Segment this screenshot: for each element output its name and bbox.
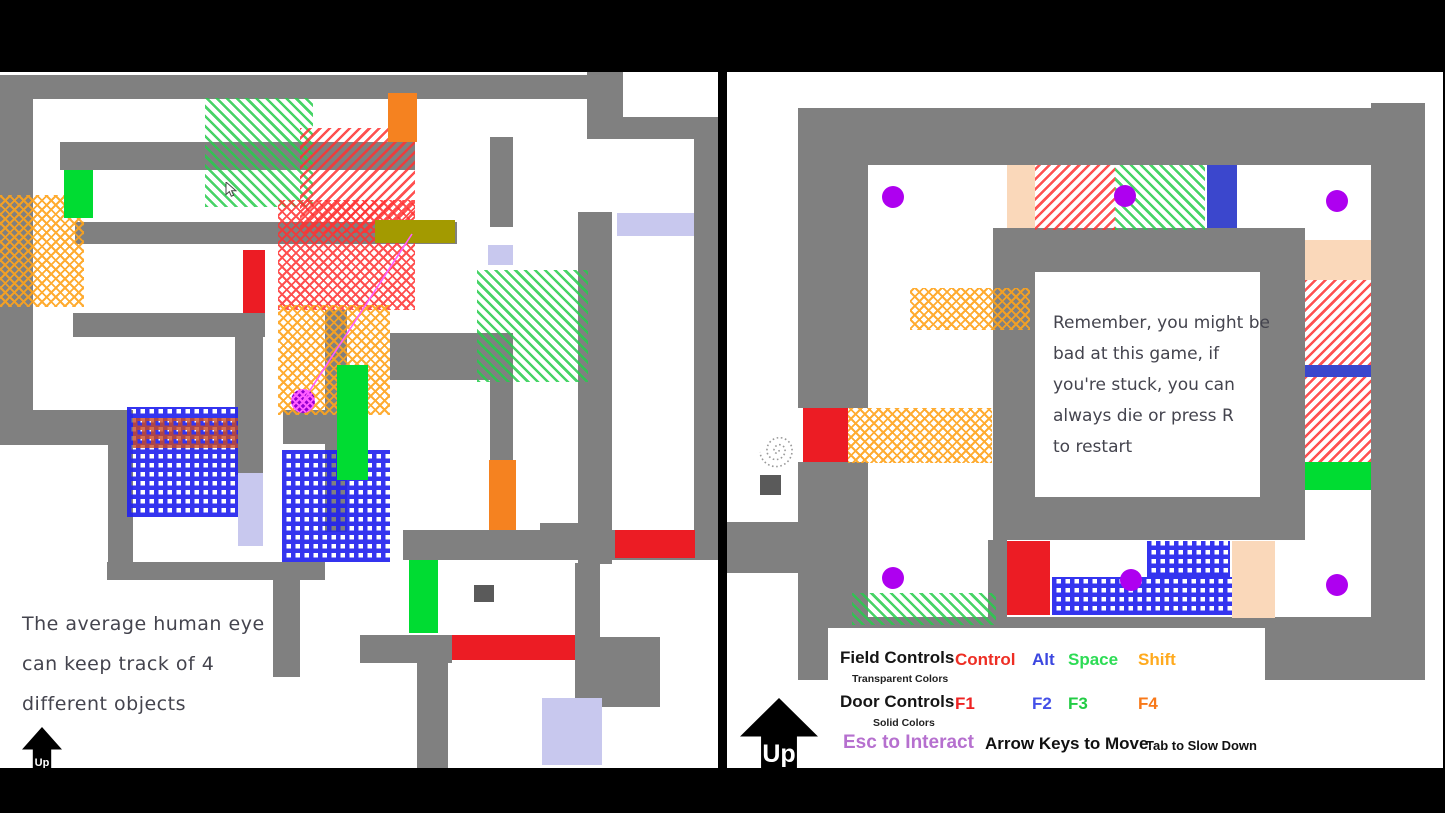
objective-dot <box>1326 574 1348 596</box>
key-f4: F4 <box>1138 694 1158 714</box>
note-line: to restart <box>1053 432 1260 463</box>
player-marker <box>291 389 315 413</box>
key-control: Control <box>955 650 1015 670</box>
maze-wall <box>540 523 590 547</box>
objective-dot <box>882 186 904 208</box>
maze-wall <box>1371 103 1425 680</box>
objective-dot <box>1326 190 1348 212</box>
field-orange-dots <box>910 288 1030 330</box>
field-red-hatch <box>1305 377 1371 462</box>
door-red <box>243 250 265 313</box>
field-controls-subtitle: Transparent Colors <box>852 673 948 685</box>
door-blue <box>1305 365 1371 377</box>
maze-wall <box>490 378 513 462</box>
key-f1: F1 <box>955 694 975 714</box>
block-lavender <box>617 213 694 236</box>
field-red-grid <box>133 418 238 448</box>
maze-wall <box>993 228 1035 540</box>
field-red-hatch <box>1035 165 1115 230</box>
key-f2: F2 <box>1032 694 1052 714</box>
right-maze-panel[interactable]: Remember, you might be bad at this game,… <box>727 72 1443 768</box>
note-line: you're stuck, you can <box>1053 370 1260 401</box>
field-blue-grid <box>1052 577 1232 615</box>
controls-legend: Field Controls Transparent Colors Contro… <box>828 628 1265 767</box>
maze-wall <box>235 313 263 475</box>
maze-wall <box>0 410 133 445</box>
maze-wall <box>694 117 718 557</box>
door-controls-label: Door Controls <box>840 692 954 712</box>
note-line: bad at this game, if <box>1053 339 1260 370</box>
field-red-hatch <box>1305 280 1371 365</box>
door-blue <box>1207 165 1237 228</box>
arrow-keys-hint: Arrow Keys to Move <box>985 734 1148 754</box>
tab-hint: Tab to Slow Down <box>1146 738 1257 753</box>
hint-line: The average human eye <box>22 604 265 644</box>
maze-wall <box>360 635 452 663</box>
door-green <box>1305 462 1371 490</box>
hint-line: different objects <box>22 684 265 724</box>
block-olive <box>375 220 455 243</box>
maze-wall <box>798 108 1425 165</box>
block-lavender <box>542 698 602 765</box>
block-lavender <box>488 245 513 265</box>
note-line: Remember, you might be <box>1053 308 1260 339</box>
key-shift: Shift <box>1138 650 1176 670</box>
maze-wall <box>575 637 660 707</box>
door-orange <box>388 93 417 142</box>
key-alt: Alt <box>1032 650 1055 670</box>
door-red <box>803 408 848 462</box>
maze-wall <box>273 562 300 677</box>
door-green <box>409 560 438 633</box>
field-controls-label: Field Controls <box>840 648 954 668</box>
field-red-dots <box>278 200 415 310</box>
spiral-icon <box>758 431 798 476</box>
field-blue-grid <box>1147 541 1230 577</box>
maze-wall <box>1260 228 1305 540</box>
field-green-hatch <box>477 270 588 382</box>
gray-marker <box>474 585 494 602</box>
door-orange <box>489 460 516 530</box>
door-peach <box>1305 240 1371 280</box>
gray-marker <box>760 475 781 495</box>
note-box: Remember, you might be bad at this game,… <box>1035 272 1260 497</box>
left-maze-panel[interactable]: The average human eye can keep track of … <box>0 72 718 768</box>
door-peach <box>1007 165 1035 228</box>
door-controls-subtitle: Solid Colors <box>873 717 935 729</box>
objective-dot <box>882 567 904 589</box>
field-orange-dots <box>848 408 992 463</box>
door-red <box>452 635 575 660</box>
door-red <box>615 530 695 558</box>
up-exit-label: Up <box>762 740 795 768</box>
hint-line: can keep track of 4 <box>22 644 265 684</box>
maze-wall <box>993 228 1305 272</box>
objective-dot <box>1120 569 1142 591</box>
field-green-hatch <box>852 593 996 625</box>
note-line: always die or press R <box>1053 401 1260 432</box>
maze-wall <box>0 75 588 99</box>
door-green <box>337 365 368 480</box>
maze-wall <box>798 108 868 408</box>
up-exit-label: Up <box>35 757 50 768</box>
maze-wall <box>727 522 798 573</box>
key-space: Space <box>1068 650 1118 670</box>
hint-text: The average human eye can keep track of … <box>22 604 265 724</box>
game-screen: The average human eye can keep track of … <box>0 0 1445 813</box>
esc-hint: Esc to Interact <box>843 732 974 754</box>
key-f3: F3 <box>1068 694 1088 714</box>
maze-wall <box>417 663 448 768</box>
maze-wall <box>578 212 612 564</box>
door-red <box>1007 541 1050 615</box>
field-green-hatch <box>205 98 313 207</box>
up-exit-arrow: Up <box>740 698 818 768</box>
door-green <box>64 170 93 218</box>
up-exit-arrow: Up <box>22 727 62 768</box>
maze-wall <box>993 497 1305 540</box>
objective-dot <box>1114 185 1136 207</box>
field-blue-grid <box>282 450 390 562</box>
maze-wall <box>490 137 513 227</box>
door-peach <box>1232 541 1275 618</box>
mouse-cursor-icon <box>225 182 237 203</box>
block-lavender <box>238 473 263 546</box>
